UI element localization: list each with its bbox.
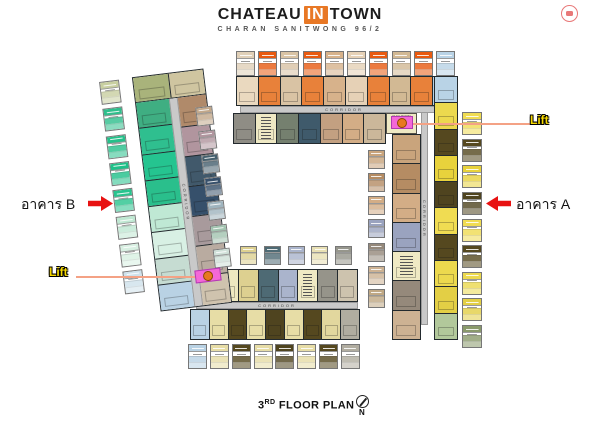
unit <box>255 114 277 143</box>
building-a-arrow-icon <box>486 196 511 211</box>
unit-info-tag <box>368 289 385 308</box>
unit <box>238 270 258 301</box>
unit <box>320 114 342 143</box>
floor-plan-page: CHATEAUINTOWN CHARAN SANITWONG 96/2 CORR… <box>0 0 600 425</box>
unit <box>435 234 457 260</box>
unit <box>149 202 185 232</box>
unit <box>435 207 457 233</box>
unit <box>435 129 457 155</box>
unit-info-tag <box>462 219 482 242</box>
lift-marker-top-right <box>391 116 413 129</box>
unit <box>389 77 411 105</box>
unit-info-tag <box>297 344 316 369</box>
unit-info-tag <box>462 325 482 348</box>
unit-info-tag <box>368 173 385 192</box>
unit-info-tag <box>195 106 214 127</box>
top-wing-inner-units <box>233 113 386 144</box>
unit <box>393 163 420 192</box>
unit-info-tag <box>258 51 277 76</box>
building-b-label: อาคาร B <box>21 194 75 216</box>
lift-leader-line-right <box>413 123 531 125</box>
unit-info-tag <box>213 248 232 269</box>
unit-info-tag <box>254 344 273 369</box>
north-label: N <box>359 408 365 417</box>
top-wing-outer-units <box>236 76 455 106</box>
unit-info-tag <box>392 51 411 76</box>
unit <box>337 270 357 301</box>
unit-info-tag <box>109 161 132 186</box>
unit <box>321 310 340 339</box>
unit <box>435 155 457 181</box>
unit <box>209 310 228 339</box>
floor-ordinal: RD <box>265 399 276 406</box>
unit <box>139 124 175 154</box>
unit-info-tag <box>198 129 217 150</box>
title-part1: CHATEAU <box>218 6 302 23</box>
unit-info-tag <box>436 51 455 76</box>
unit <box>237 77 258 105</box>
unit-info-tag <box>275 344 294 369</box>
unit-info-tag <box>368 243 385 262</box>
unit <box>345 77 367 105</box>
unit-info-tag <box>462 192 482 215</box>
lift-label-left: Lift <box>49 265 68 279</box>
unit <box>280 77 302 105</box>
unit <box>234 114 255 143</box>
unit <box>393 310 420 339</box>
unit-info-tag <box>188 344 207 369</box>
unit <box>342 114 364 143</box>
unit-info-tag <box>204 177 223 198</box>
unit <box>158 280 194 310</box>
unit <box>367 77 389 105</box>
unit-info-tag <box>311 246 328 265</box>
title-in-box: IN <box>304 6 328 24</box>
unit-info-tag <box>236 51 255 76</box>
unit <box>146 176 182 206</box>
unit-info-tag <box>335 246 352 265</box>
bottom-wing-outer-units <box>190 309 360 340</box>
unit <box>435 181 457 207</box>
unit-info-tag <box>462 272 482 295</box>
right-wing-outer-units <box>434 76 458 340</box>
unit <box>191 310 209 339</box>
unit <box>435 313 457 339</box>
unit-info-tag <box>210 224 229 245</box>
unit-info-tag <box>368 196 385 215</box>
unit <box>258 77 280 105</box>
unit-info-tag <box>368 150 385 169</box>
unit <box>340 310 359 339</box>
unit-info-tag <box>462 298 482 321</box>
bottom-wing-inner-units <box>218 269 358 302</box>
unit <box>393 193 420 222</box>
unit-info-tag <box>462 165 482 188</box>
unit-info-tag <box>102 107 125 132</box>
unit <box>284 310 303 339</box>
tags-bottom-row <box>188 344 360 369</box>
unit <box>278 270 298 301</box>
unit <box>393 222 420 251</box>
corridor-label: CORRIDOR <box>258 303 296 308</box>
title-part2: TOWN <box>330 6 383 23</box>
unit-info-tag <box>112 188 135 213</box>
unit <box>167 70 205 98</box>
unit-info-tag <box>288 246 305 265</box>
unit-info-tag <box>99 80 122 105</box>
lift-circle-icon <box>202 270 213 281</box>
unit <box>133 74 170 102</box>
unit <box>258 270 278 301</box>
unit <box>363 114 385 143</box>
unit-info-tag <box>240 246 257 265</box>
unit <box>246 310 265 339</box>
unit <box>297 270 317 301</box>
unit <box>435 77 457 102</box>
unit-info-tag <box>116 215 139 240</box>
tags-top-row <box>236 51 455 76</box>
unit-info-tag <box>341 344 360 369</box>
unit <box>317 270 337 301</box>
corridor-label: CORRIDOR <box>422 200 427 238</box>
north-compass-icon <box>356 395 369 408</box>
lift-circle-icon <box>397 118 407 128</box>
unit-info-tag <box>368 219 385 238</box>
unit <box>301 77 323 105</box>
unit <box>435 260 457 286</box>
unit <box>228 310 247 339</box>
lift-leader-line-left <box>76 276 200 278</box>
unit-info-tag <box>369 51 388 76</box>
unit-info-tag <box>201 153 220 174</box>
unit-info-tag <box>462 139 482 162</box>
tags-right-outer-column <box>462 112 482 348</box>
unit <box>393 251 420 280</box>
unit <box>393 135 420 163</box>
lift-label-right: Lift <box>530 113 549 127</box>
unit-info-tag <box>122 269 145 294</box>
building-b-arrow-icon <box>88 196 113 211</box>
unit-info-tag <box>325 51 344 76</box>
unit-info-tag <box>119 242 142 267</box>
right-corridor: CORRIDOR <box>421 112 428 325</box>
tags-right-inner-column <box>368 150 386 308</box>
floor-title-rest: FLOOR PLAN <box>275 400 354 412</box>
unit <box>298 114 320 143</box>
project-subtitle: CHARAN SANITWONG 96/2 <box>0 26 600 33</box>
unit-info-tag <box>319 344 338 369</box>
unit <box>323 77 345 105</box>
unit <box>276 114 298 143</box>
unit-info-tag <box>264 246 281 265</box>
unit-info-tag <box>462 245 482 268</box>
unit <box>393 280 420 309</box>
tags-bottom-inner-row <box>240 246 352 266</box>
corridor-label: CORRIDOR <box>325 107 363 112</box>
unit <box>155 254 191 284</box>
unit-info-tag <box>280 51 299 76</box>
floor-plan-title: 3RD FLOOR PLAN <box>258 399 354 412</box>
header: CHATEAUINTOWN CHARAN SANITWONG 96/2 <box>0 6 600 33</box>
unit <box>435 286 457 312</box>
unit-info-tag <box>414 51 433 76</box>
unit <box>265 310 284 339</box>
unit-info-tag <box>303 51 322 76</box>
unit-info-tag <box>210 344 229 369</box>
building-a-label: อาคาร A <box>516 194 570 216</box>
unit-info-tag <box>368 266 385 285</box>
project-title: CHATEAUINTOWN <box>0 6 600 24</box>
unit <box>152 228 188 258</box>
unit <box>142 150 178 180</box>
unit-info-tag <box>207 200 226 221</box>
unit <box>303 310 322 339</box>
unit <box>410 77 432 105</box>
top-corridor: CORRIDOR <box>240 106 448 113</box>
unit-info-tag <box>232 344 251 369</box>
right-wing-inner-units <box>392 134 421 340</box>
unit-info-tag <box>106 134 129 159</box>
photo-badge-icon <box>561 5 578 22</box>
unit-info-tag <box>347 51 366 76</box>
